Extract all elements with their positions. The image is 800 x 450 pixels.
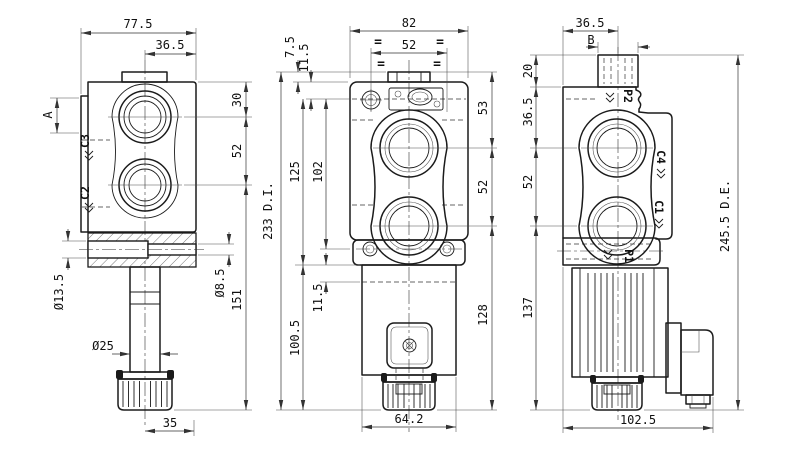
equal-mark-1: = [374,35,382,50]
dim-front-base-offset: 11.5 [311,284,325,313]
dim-left-top-to-port: 30 [230,93,244,107]
dim-front-lower-height: 100.5 [288,320,302,356]
front-view: 82 = = 52 = = 7.5 11.5 125 102 100.5 11.… [261,16,497,432]
equal-mark-2: = [436,35,444,50]
left-side-view: 77.5 36.5 A 30 52 151 Ø8.5 Ø13.5 Ø25 35 … [41,17,252,436]
dim-left-knob-width: 35 [163,416,177,430]
left-port-block [81,96,88,232]
right-nut-flange [592,377,642,383]
dim-front-overall-height: 233 D.I. [261,182,275,240]
dim-left-port-spacing: 52 [230,144,244,158]
coil-rib-lines [588,273,643,372]
dim-left-half-width: 36.5 [156,38,185,52]
dim-front-right-port-spacing: 52 [476,180,490,194]
left-body [88,82,196,232]
c4-flow-arrow-icon [657,169,665,178]
dim-front-right-lower: 128 [476,304,490,326]
port-label-c1: C1 [652,200,666,214]
c2-flow-arrow-icon [85,203,93,212]
equal-mark-4: = [433,57,441,72]
port-label-c3: C3 [78,134,92,148]
dim-left-overall-width: 77.5 [124,17,153,31]
valve-technical-drawing: 77.5 36.5 A 30 52 151 Ø8.5 Ø13.5 Ø25 35 … [0,0,800,450]
dim-right-overall-height: 245.5 D.E. [718,180,732,252]
c3-flow-arrow-icon [85,151,93,160]
dim-front-coil-width: 64.2 [395,412,424,426]
dim-left-hole-side: Ø13.5 [52,274,66,310]
dim-front-right-top: 53 [476,101,490,115]
dim-right-top-width: 36.5 [576,16,605,30]
dim-right-boss-height: 20 [521,64,535,78]
dim-right-overall-width: 102.5 [620,413,656,427]
dim-front-body-height: 125 [288,161,302,183]
technical-drawing-page: 77.5 36.5 A 30 52 151 Ø8.5 Ø13.5 Ø25 35 … [0,0,800,450]
dim-front-port-face-width: 52 [402,38,416,52]
left-top-cap [122,72,167,82]
dim-front-top-offset: 11.5 [297,44,311,73]
dim-left-hole-small: Ø8.5 [213,269,227,298]
dim-right-top-to-port: 36.5 [521,98,535,127]
port-label-c4: C4 [654,150,668,164]
p2-flow-arrow-icon [606,93,614,102]
port-label-c2: C2 [78,186,92,200]
dim-left-ref-a: A [41,111,55,119]
dim-front-bolt-spacing: 102 [311,161,325,183]
port-label-p2: P2 [621,89,635,103]
dim-front-overall-width: 82 [402,16,416,30]
cable-gland [686,395,710,404]
port-label-p1: P1 [622,249,636,263]
right-body [563,87,636,238]
c1-flow-arrow-icon [655,219,663,228]
right-knurled-nut [592,383,642,410]
dim-right-ref-b: B [587,33,594,47]
brand-logo-icon [408,89,432,105]
dim-front-boss-height: 7.5 [283,36,297,58]
dim-right-port-spacing: 52 [521,175,535,189]
dim-right-lower-height: 137 [521,297,535,319]
dim-left-stem-dia: Ø25 [92,339,114,353]
dim-left-stem-length: 151 [230,289,244,311]
right-side-view: P2 C4 C1 P1 36.5 B 20 36.5 52 137 245.5 … [521,16,744,433]
equal-mark-3: = [377,57,385,72]
right-cable-connector [681,330,713,395]
right-port-boss [579,110,655,264]
